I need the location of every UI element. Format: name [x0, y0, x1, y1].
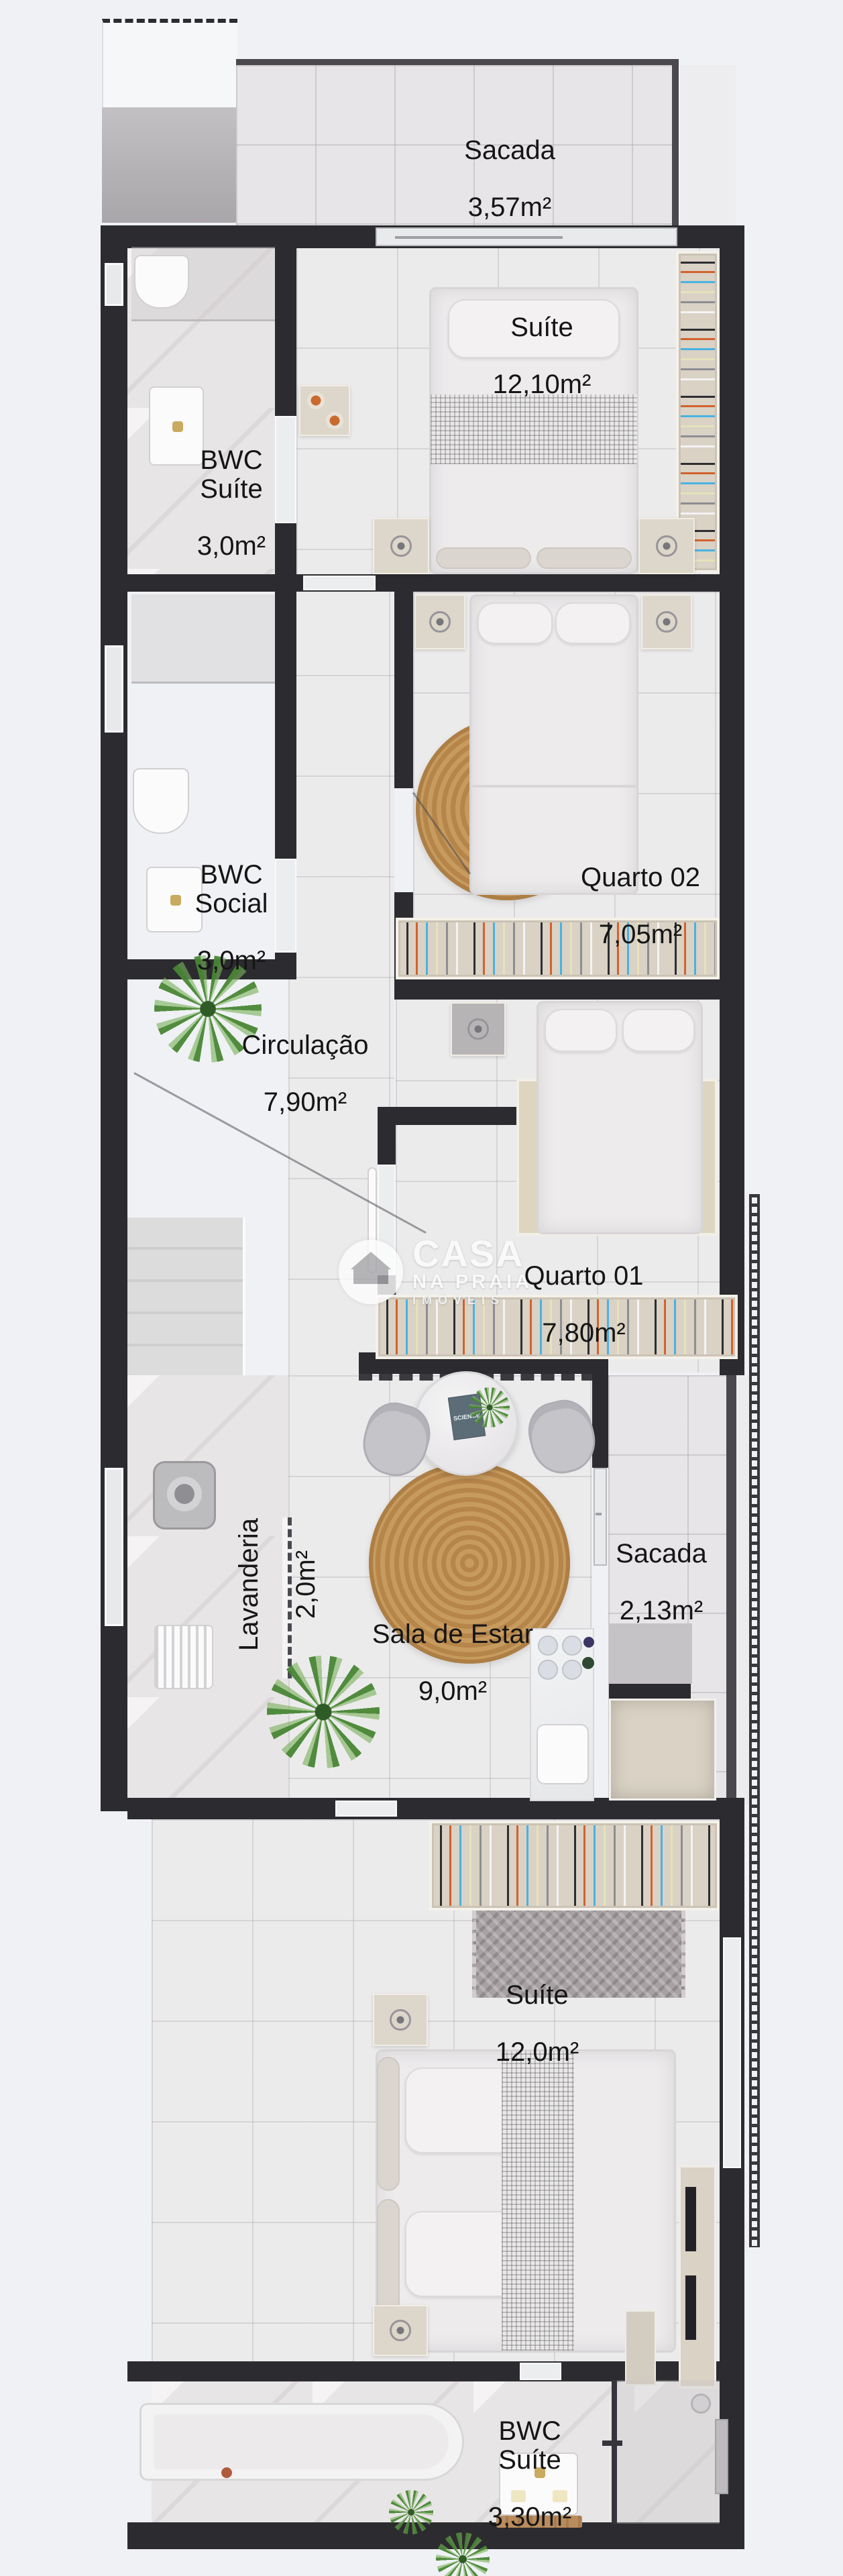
tv-screen: [685, 2187, 696, 2251]
wall-quarto01-entry-stub: [378, 1107, 539, 1125]
nightstand-suite-top-left: [373, 518, 429, 574]
room-area: 3,30m²: [443, 2503, 617, 2532]
room-area: 7,80m²: [495, 1319, 673, 1348]
room-area: 12,0m²: [449, 2038, 625, 2067]
room-name: Sacada: [590, 1540, 732, 1568]
room-area: 2,13m²: [590, 1597, 732, 1625]
stove-burner: [562, 1635, 582, 1656]
room-label-suite-bottom: Suíte 12,0m²: [449, 1952, 625, 2096]
room-label-bwc-suite-top: BWC Suíte 3,0m²: [158, 417, 305, 590]
decor-wheel-icon: [390, 2009, 411, 2031]
side-table-suite-top: [299, 385, 350, 436]
nightstand-suite-top-right: [638, 518, 695, 574]
pillow-quarto02-left: [477, 602, 553, 644]
room-name: Circulação: [215, 1031, 396, 1060]
pillow-quarto02-right: [555, 602, 630, 644]
bench-suite-bottom: [625, 2310, 656, 2385]
shower-area-bwc-social: [131, 594, 275, 684]
room-label-quarto02: Quarto 02 7,05m²: [550, 835, 731, 978]
room-name: Suíte: [461, 313, 622, 342]
room-area: 3,57m²: [429, 193, 590, 222]
wardrobe-suite-bottom: [429, 1821, 720, 1911]
watermark-text: CASA NA PRAIA IMÓVEIS: [412, 1236, 532, 1307]
decor-wheel-icon: [467, 1018, 489, 1040]
pillow-quarto01-right: [622, 1009, 695, 1052]
room-area: 9,0m²: [349, 1677, 557, 1706]
sliding-door-suite-bottom-right: [723, 1937, 741, 2168]
watermark-line1: CASA: [412, 1236, 532, 1271]
room-label-suite-top: Suíte 12,10m²: [461, 284, 622, 428]
plant-on-table: [469, 1387, 510, 1428]
wall-quarto02-left-a: [394, 592, 413, 788]
tv-console-suite-bottom: [679, 2165, 716, 2388]
window-lavanderia: [105, 1468, 123, 1626]
room-area: 12,10m²: [461, 370, 622, 399]
stove-burner: [562, 1660, 582, 1680]
room-area: 3,0m²: [158, 947, 305, 975]
room-name: Sala de Estar: [349, 1620, 557, 1649]
bathtub: [139, 2403, 464, 2481]
room-area: 2,0m²: [292, 1484, 321, 1685]
bolster-suite-top-left: [436, 547, 531, 569]
decor-wheel-icon: [390, 535, 412, 557]
plate-icon: [307, 392, 325, 409]
decor-wheel-icon: [656, 535, 677, 557]
nightstand-suite-bottom-bottom: [373, 2305, 428, 2356]
watermark-line2: NA PRAIA: [412, 1271, 532, 1293]
room-label-sacada-top: Sacada 3,57m²: [429, 107, 590, 251]
wall-sacada-right: [672, 59, 679, 225]
room-area: 3,0m²: [158, 532, 305, 561]
wall-sala-bottom: [127, 1798, 744, 1819]
hall-cabinet: [127, 1218, 245, 1375]
door-opening-suite-bottom: [335, 1801, 397, 1817]
room-label-sala: Sala de Estar 9,0m²: [349, 1591, 557, 1735]
annex-box-open: [102, 19, 237, 111]
annex-box-shaft: [102, 107, 236, 223]
toilet-bwc-top: [134, 255, 189, 309]
exterior-railing: [749, 1194, 760, 2247]
wall-sala-sacada-divider: [592, 1374, 608, 1468]
room-label-bwc-social: BWC Social 3,0m²: [158, 832, 305, 1004]
toilet-bwc-social: [133, 768, 189, 834]
room-name: BWC Suíte: [443, 2417, 617, 2475]
room-name: BWC Social: [158, 861, 305, 918]
nightstand-quarto02-left: [414, 594, 465, 649]
nightstand-quarto01: [451, 1002, 506, 1056]
room-name: Sacada: [429, 136, 590, 165]
wall-bwc-social-right-a: [275, 592, 296, 859]
balcony-closet: [609, 1699, 716, 1801]
soap-accent: [221, 2467, 232, 2478]
room-label-bwc-suite-bottom: BWC Suíte 3,30m²: [443, 2388, 617, 2561]
room-name: Suíte: [449, 1981, 625, 2010]
watermark: CASA NA PRAIA IMÓVEIS: [339, 1236, 573, 1307]
room-area: 7,90m²: [215, 1088, 396, 1117]
wall-sacada-top: [236, 59, 679, 65]
room-name: Lavanderia: [235, 1484, 264, 1685]
laundry-sink: [154, 1625, 213, 1689]
room-area: 7,05m²: [550, 920, 731, 949]
floor-exterior-ledge-right: [736, 1375, 749, 1805]
room-label-lavanderia: Lavanderia 2,0m²: [206, 1484, 266, 1685]
stove-knob: [581, 1656, 596, 1670]
room-name: BWC Suíte: [158, 446, 305, 504]
sheet-fold-quarto02: [472, 785, 636, 788]
decor-wheel-icon: [429, 611, 451, 633]
bathtub-basin: [154, 2414, 449, 2469]
bolster-suite-top-right: [537, 547, 632, 569]
floor-exterior-ledge-top: [679, 65, 736, 225]
window-bwc-suite-top: [105, 263, 123, 306]
wall-outer-right-upper: [720, 225, 744, 1375]
house-icon: [339, 1240, 403, 1304]
room-label-sacada-lateral: Sacada 2,13m²: [590, 1511, 732, 1654]
wall-outer-bottom: [127, 2522, 744, 2549]
bolster-suite-bottom-top: [377, 2057, 400, 2191]
floorplan-canvas: SCIENCE Sacad: [0, 0, 843, 2576]
decor-wheel-icon: [390, 2320, 411, 2341]
room-label-circulacao: Circulação 7,90m²: [215, 1002, 396, 1146]
service-door-right: [715, 2419, 728, 2494]
plant-bwc-bottom: [389, 2490, 433, 2534]
decor-wheel-icon: [656, 611, 677, 633]
plate-icon: [326, 412, 343, 429]
room-name: Quarto 02: [550, 863, 731, 892]
washer-drum: [167, 1477, 202, 1511]
tv-screen: [685, 2275, 696, 2340]
wall-shaft-sacada-lateral: [609, 1684, 691, 1699]
door-opening-bwc-bottom: [520, 2363, 561, 2380]
wall-bwc-suite-top-right-a: [275, 247, 296, 416]
pillow-quarto01-left: [545, 1009, 617, 1052]
window-bwc-social: [105, 645, 123, 733]
nightstand-suite-bottom-top: [373, 1994, 428, 2046]
door-opening-suite-top: [303, 576, 376, 590]
wall-quarto02-bottom: [394, 979, 720, 1000]
watermark-line3: IMÓVEIS: [412, 1293, 532, 1307]
shower-drain: [691, 2394, 711, 2414]
nightstand-quarto02-right: [641, 594, 692, 649]
throw-blanket-suite-bottom: [502, 2051, 574, 2351]
